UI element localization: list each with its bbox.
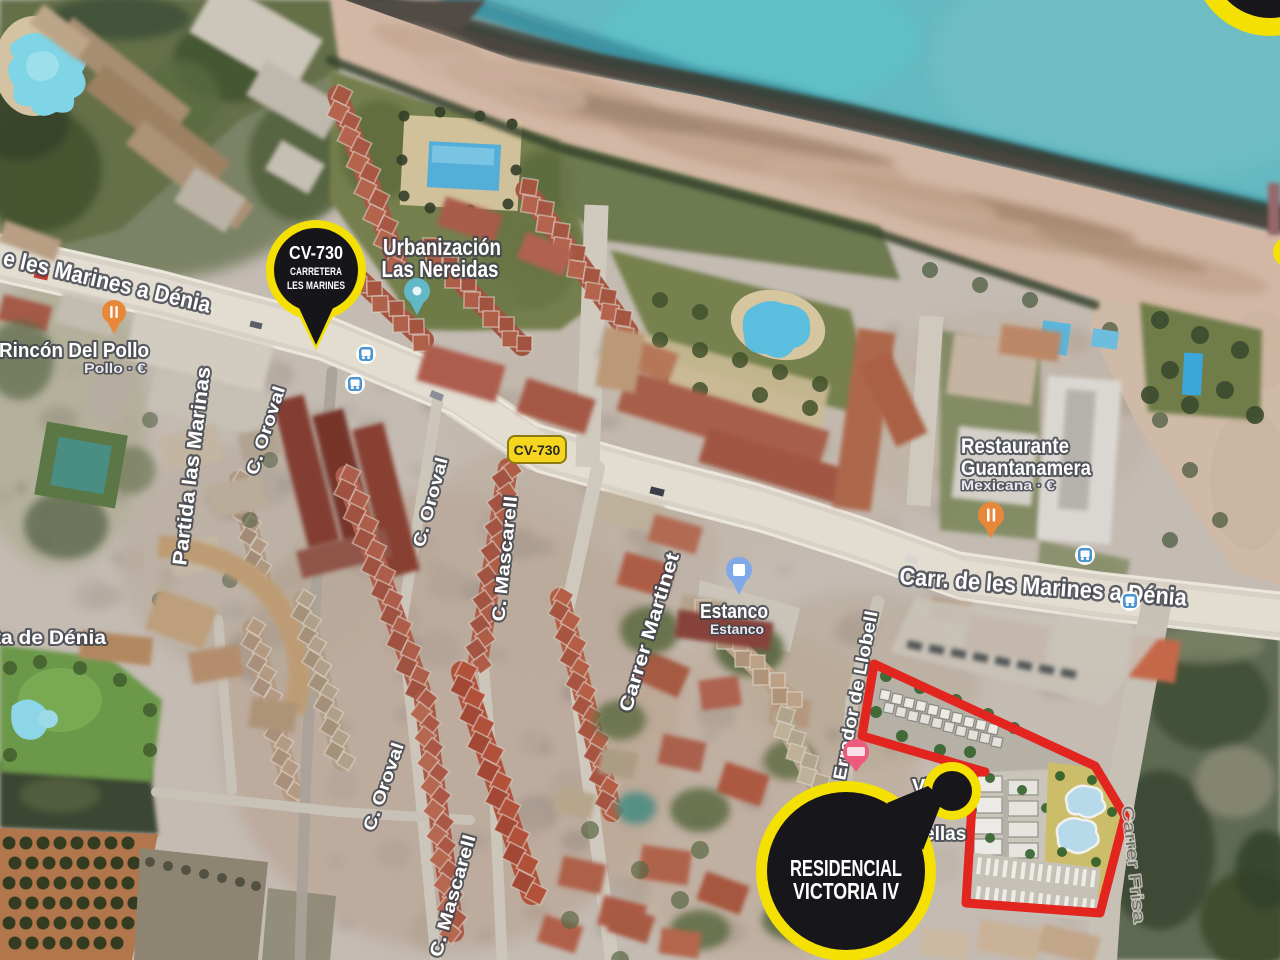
svg-text:Estanco: Estanco [700,601,768,623]
svg-text:Estanco: Estanco [710,621,764,637]
svg-text:CARRETERA: CARRETERA [290,266,342,278]
svg-text:Restaurante: Restaurante [961,435,1069,458]
svg-text:CV-730: CV-730 [514,442,561,458]
svg-text:ta de Dénia: ta de Dénia [0,628,106,649]
svg-text:Pollo · €: Pollo · € [84,360,146,376]
svg-text:VICTORIA IV: VICTORIA IV [793,878,900,904]
svg-text:Mexicana · €: Mexicana · € [961,477,1055,493]
svg-text:Las Nereidas: Las Nereidas [382,256,499,282]
svg-text:Rincón Del Pollo: Rincón Del Pollo [0,340,149,362]
svg-text:CV-730: CV-730 [289,242,343,263]
svg-text:LES MARINES: LES MARINES [287,280,345,292]
